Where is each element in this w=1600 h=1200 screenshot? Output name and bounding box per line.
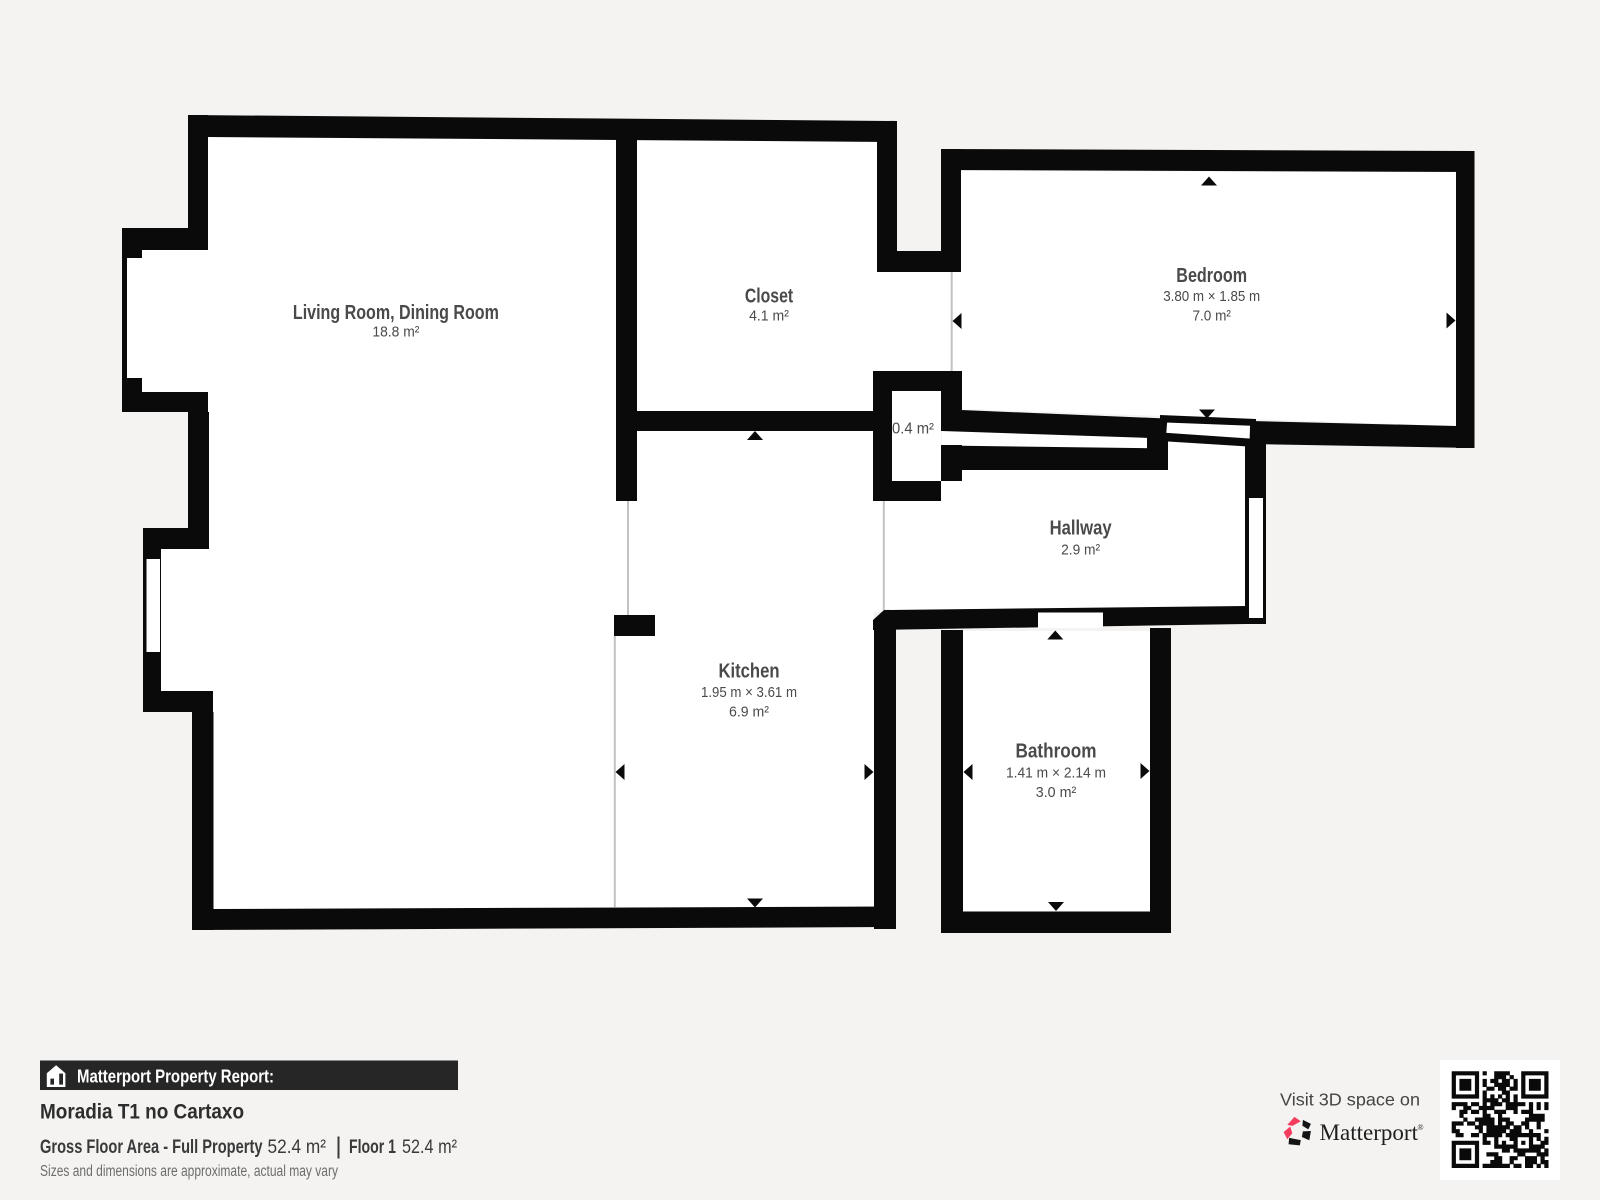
svg-text:2.9 m²: 2.9 m² (1061, 542, 1100, 559)
svg-text:0.4 m²: 0.4 m² (892, 421, 934, 438)
svg-text:7.0 m²: 7.0 m² (1193, 308, 1231, 325)
svg-text:®: ® (1418, 1123, 1424, 1132)
svg-text:Living Room, Dining Room: Living Room, Dining Room (293, 301, 499, 324)
svg-text:Bedroom: Bedroom (1176, 264, 1247, 287)
svg-text:1.95 m × 3.61 m: 1.95 m × 3.61 m (701, 684, 797, 701)
svg-text:Visit 3D space on: Visit 3D space on (1280, 1090, 1420, 1110)
svg-text:Matterport: Matterport (1320, 1120, 1419, 1145)
svg-text:Closet: Closet (745, 284, 793, 307)
svg-text:52.4 m²: 52.4 m² (402, 1137, 457, 1158)
svg-text:6.9 m²: 6.9 m² (729, 704, 769, 721)
svg-text:18.8 m²: 18.8 m² (372, 324, 419, 341)
svg-text:4.1 m²: 4.1 m² (749, 308, 789, 325)
svg-text:Bathroom: Bathroom (1016, 740, 1097, 763)
svg-text:Gross Floor Area - Full Proper: Gross Floor Area - Full Property (40, 1137, 263, 1158)
svg-text:3.0 m²: 3.0 m² (1036, 784, 1077, 801)
svg-text:Matterport Property Report:: Matterport Property Report: (77, 1067, 274, 1087)
svg-text:Floor 1: Floor 1 (349, 1137, 396, 1158)
svg-text:Sizes and dimensions are appro: Sizes and dimensions are approximate, ac… (40, 1163, 338, 1180)
svg-text:52.4 m²: 52.4 m² (268, 1137, 327, 1158)
svg-text:1.41 m × 2.14 m: 1.41 m × 2.14 m (1006, 765, 1106, 782)
svg-text:3.80 m × 1.85 m: 3.80 m × 1.85 m (1163, 288, 1260, 305)
svg-text:Kitchen: Kitchen (719, 660, 780, 683)
svg-text:Hallway: Hallway (1050, 516, 1112, 539)
svg-text:Moradia T1 no Cartaxo: Moradia T1 no Cartaxo (40, 1100, 244, 1124)
